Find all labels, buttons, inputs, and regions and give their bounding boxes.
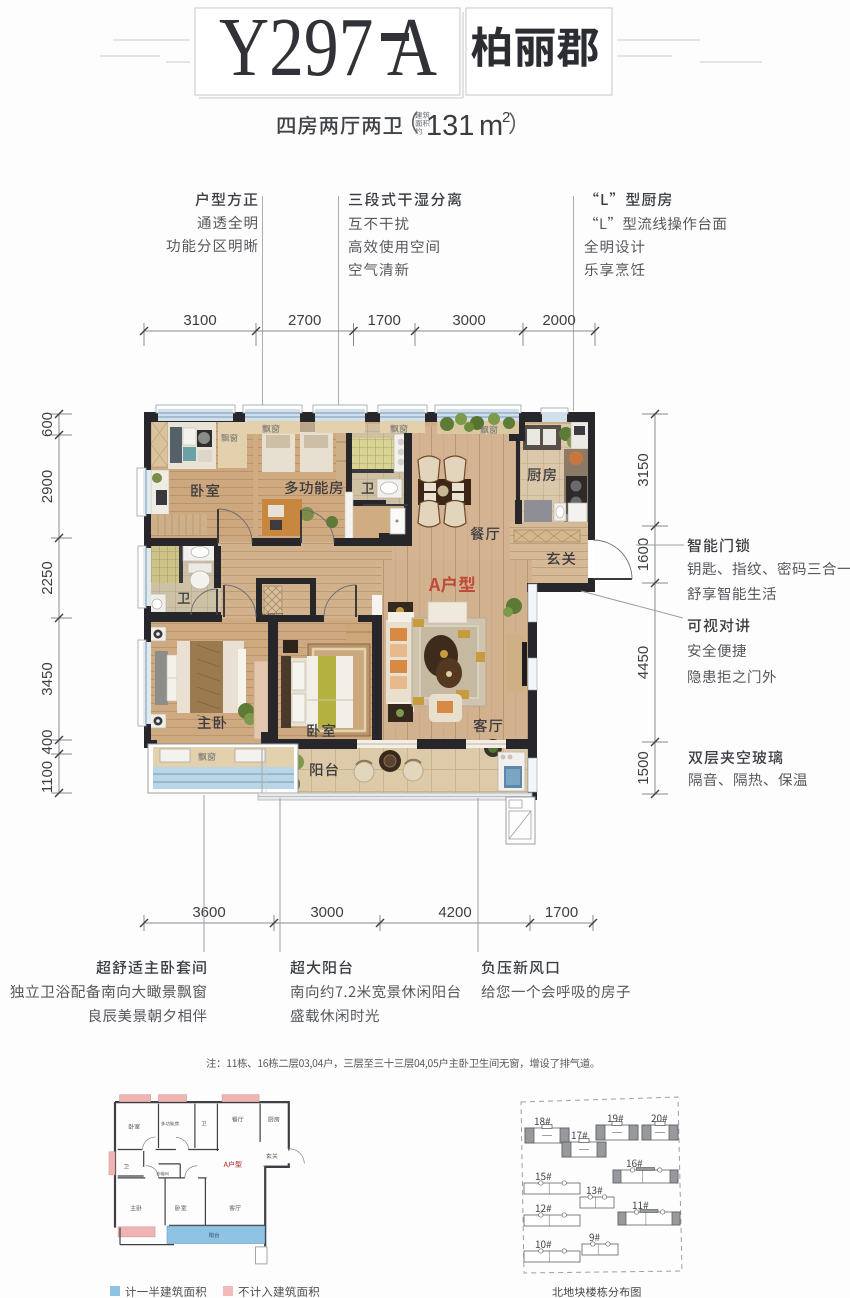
svg-text:600: 600 [39, 412, 56, 437]
svg-text:4450: 4450 [635, 646, 652, 679]
svg-text:2: 2 [502, 109, 510, 126]
svg-text:131: 131 [426, 110, 474, 142]
svg-text:3600: 3600 [192, 904, 225, 921]
svg-text:1100: 1100 [39, 761, 56, 793]
svg-text:3450: 3450 [39, 662, 56, 695]
svg-text:400: 400 [39, 729, 56, 754]
svg-text:Y297 A: Y297 A [219, 1, 437, 94]
svg-text:2000: 2000 [542, 312, 575, 329]
svg-text:2250: 2250 [39, 561, 56, 594]
svg-text:2900: 2900 [39, 470, 56, 503]
svg-text:1500: 1500 [635, 751, 652, 784]
svg-text:3000: 3000 [452, 312, 485, 329]
svg-text:1600: 1600 [635, 538, 652, 571]
svg-text:3100: 3100 [183, 312, 216, 329]
svg-text:3150: 3150 [635, 453, 652, 486]
svg-text:m: m [479, 110, 503, 142]
svg-text:1700: 1700 [545, 904, 578, 921]
svg-text:3000: 3000 [310, 904, 343, 921]
svg-text:4200: 4200 [438, 904, 471, 921]
svg-text:1700: 1700 [368, 312, 401, 329]
svg-text:2700: 2700 [288, 312, 321, 329]
